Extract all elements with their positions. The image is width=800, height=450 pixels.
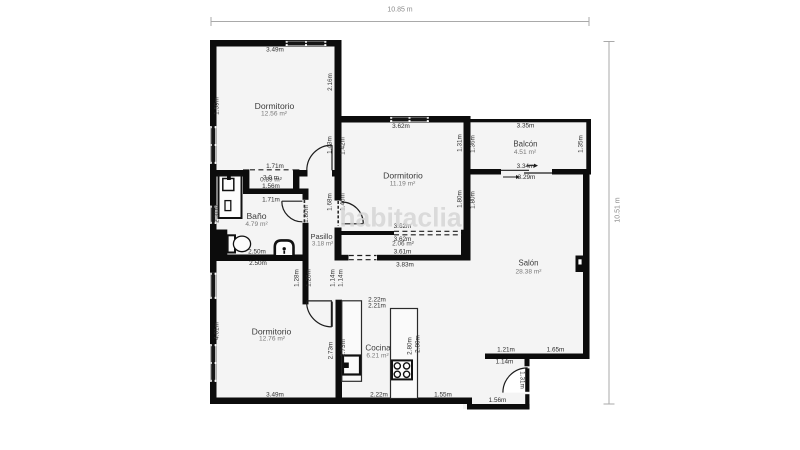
svg-text:10.51 m: 10.51 m — [615, 197, 622, 222]
svg-text:2.16m: 2.16m — [327, 73, 334, 91]
svg-text:1.31m: 1.31m — [519, 371, 526, 389]
svg-text:4.01m: 4.01m — [214, 322, 221, 340]
svg-text:1.56m: 1.56m — [489, 397, 507, 404]
svg-text:12.76 m²: 12.76 m² — [259, 336, 286, 343]
svg-text:3.35m: 3.35m — [517, 122, 535, 129]
svg-text:1.21m: 1.21m — [497, 347, 515, 354]
svg-text:3.49m: 3.49m — [266, 391, 284, 398]
svg-text:2.73m: 2.73m — [327, 342, 334, 360]
svg-text:1.59m: 1.59m — [214, 97, 221, 115]
svg-text:12.56 m²: 12.56 m² — [261, 110, 288, 117]
svg-text:Dormitorio: Dormitorio — [255, 101, 295, 111]
svg-text:6.21 m²: 6.21 m² — [366, 353, 389, 360]
svg-text:2.31m: 2.31m — [214, 205, 221, 223]
svg-text:1.43m: 1.43m — [327, 136, 334, 154]
svg-text:1.71m: 1.71m — [262, 197, 280, 204]
svg-text:1.35m: 1.35m — [578, 135, 585, 153]
svg-text:2.21m: 2.21m — [368, 302, 386, 309]
svg-text:4.79 m²: 4.79 m² — [245, 221, 268, 228]
svg-text:3.29m: 3.29m — [518, 174, 536, 181]
svg-text:1.68m: 1.68m — [327, 193, 334, 211]
svg-text:Salón: Salón — [519, 259, 539, 268]
svg-text:2.80m: 2.80m — [407, 337, 414, 355]
svg-text:11.19 m²: 11.19 m² — [390, 181, 416, 188]
svg-text:3.61m: 3.61m — [394, 249, 412, 256]
svg-text:1.31m: 1.31m — [457, 134, 464, 152]
svg-text:1.65m: 1.65m — [547, 347, 565, 354]
svg-text:2.50m: 2.50m — [248, 249, 266, 256]
svg-text:habitaclia: habitaclia — [339, 203, 462, 233]
svg-text:1.42m: 1.42m — [340, 137, 347, 155]
svg-text:Cocina: Cocina — [365, 344, 391, 353]
svg-text:1.55m: 1.55m — [434, 391, 452, 398]
svg-text:2.06 m²: 2.06 m² — [392, 241, 414, 248]
svg-text:2.50m: 2.50m — [249, 260, 267, 267]
svg-text:3.18 m²: 3.18 m² — [312, 241, 333, 248]
svg-text:1.71m: 1.71m — [266, 163, 284, 170]
svg-text:2.22m: 2.22m — [370, 391, 388, 398]
svg-text:3.34m: 3.34m — [517, 163, 535, 170]
svg-text:1.80m: 1.80m — [470, 191, 477, 209]
svg-text:1.14m: 1.14m — [330, 269, 337, 287]
svg-text:1.14m: 1.14m — [496, 359, 514, 366]
svg-text:4.51 m²: 4.51 m² — [514, 149, 537, 156]
svg-text:10.85 m: 10.85 m — [387, 7, 412, 14]
svg-text:3.83m: 3.83m — [396, 261, 414, 268]
svg-text:2.73m: 2.73m — [340, 339, 347, 357]
svg-text:1.14m: 1.14m — [338, 269, 345, 287]
svg-text:1.28m: 1.28m — [306, 269, 313, 287]
svg-text:Baño: Baño — [246, 211, 266, 221]
svg-text:Balcón: Balcón — [513, 140, 537, 149]
svg-text:1.56m: 1.56m — [262, 183, 280, 190]
svg-text:3.62m: 3.62m — [392, 123, 410, 130]
svg-text:1.80m: 1.80m — [303, 205, 310, 223]
svg-text:3.49m: 3.49m — [266, 47, 284, 54]
svg-text:Dormitorio: Dormitorio — [383, 171, 423, 181]
svg-text:28.38 m²: 28.38 m² — [515, 269, 542, 276]
svg-text:1.36m: 1.36m — [470, 135, 477, 153]
svg-text:2.80m: 2.80m — [415, 335, 422, 353]
svg-text:1.28m: 1.28m — [294, 269, 301, 287]
